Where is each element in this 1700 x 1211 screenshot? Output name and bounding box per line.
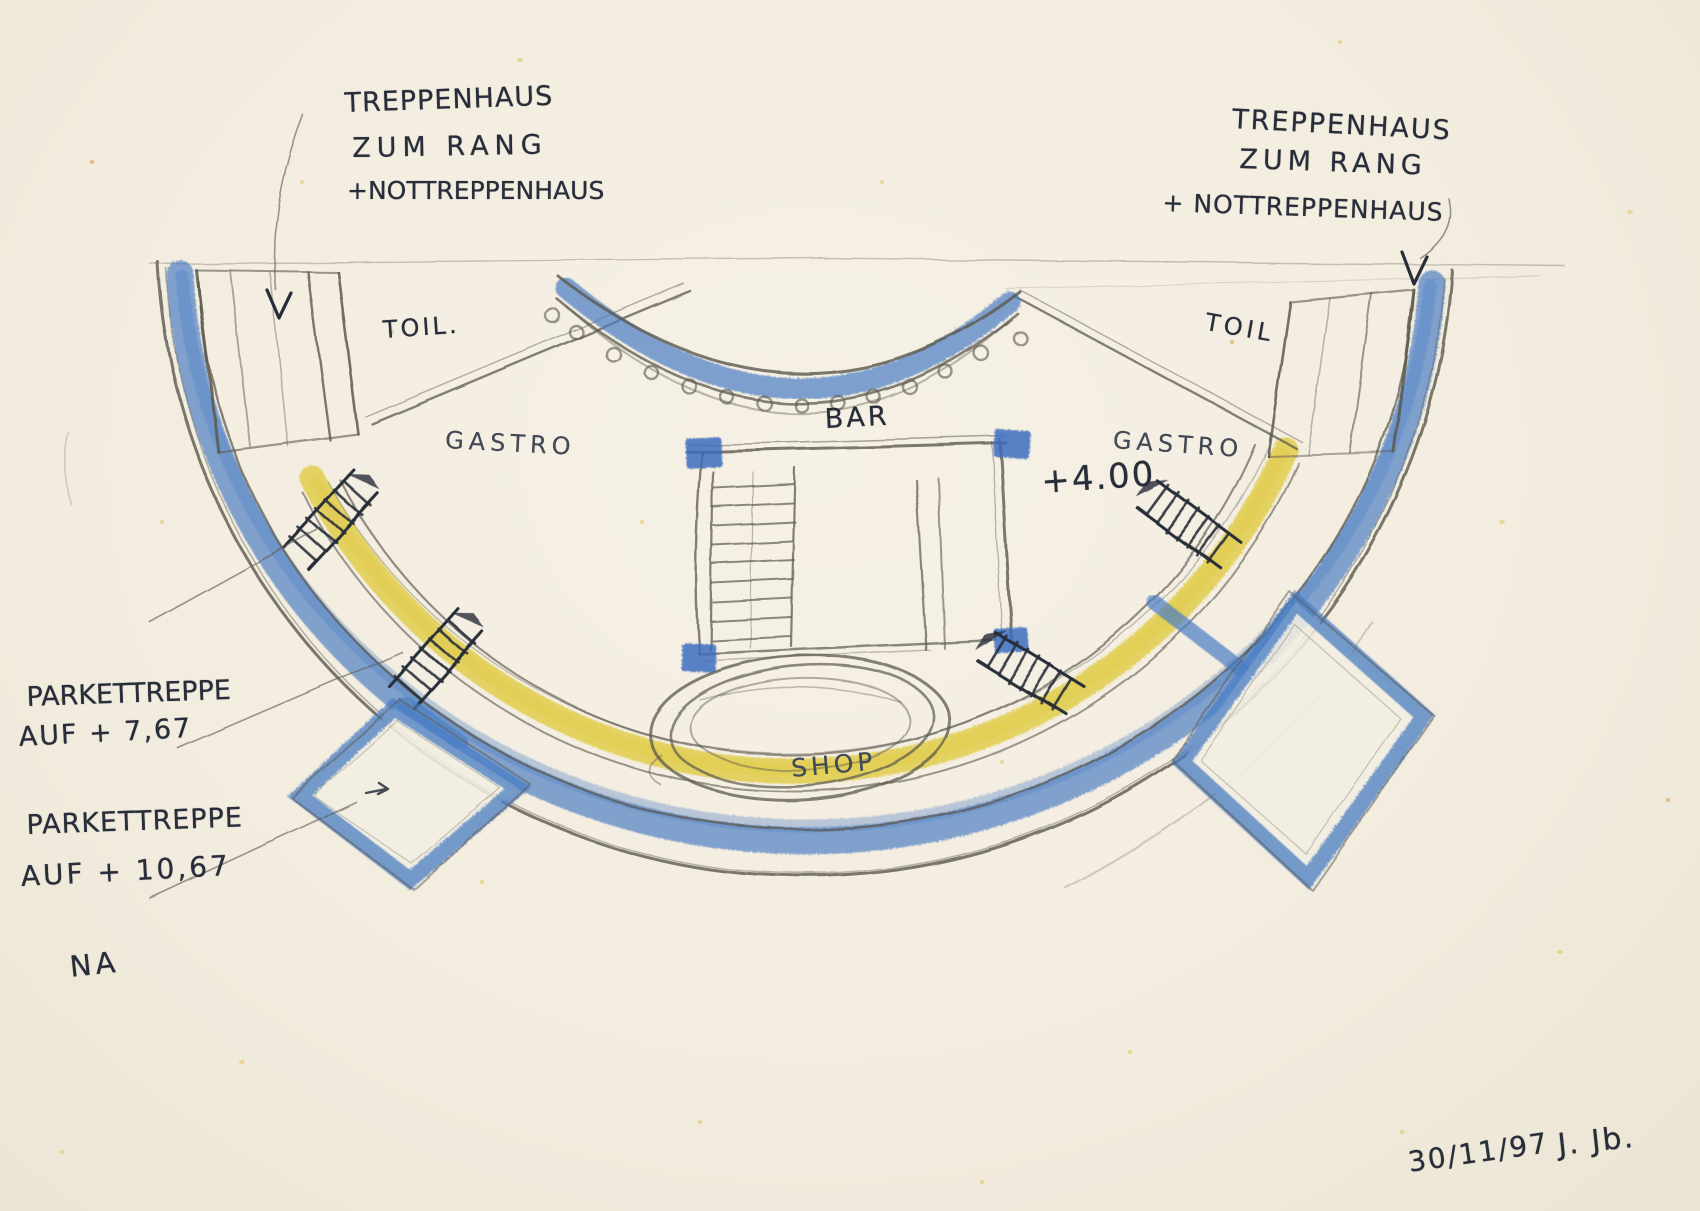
stair-note-right-line2: ZUM RANG	[1239, 144, 1427, 182]
leader-stair-note-left	[275, 115, 303, 290]
level-label: +4.00	[1040, 454, 1157, 502]
shop-ellipse	[646, 648, 953, 808]
core-corner-pads	[682, 429, 1031, 673]
core-stair-block	[682, 429, 1031, 673]
room-label-toilet-left: TOIL.	[382, 311, 460, 344]
sketch-paper: TREPPENHAUS ZUM RANG +NOTTREPPENHAUS TRE…	[0, 0, 1700, 1211]
stair-note-left-line3: +NOTTREPPENHAUS	[347, 176, 604, 205]
floor-plan-drawing	[0, 0, 1700, 1211]
stair-note-left-line2: ZUM RANG	[352, 130, 548, 164]
left-pavilion-diamond	[292, 700, 530, 890]
arrow-down-left-icon	[267, 290, 291, 318]
right-pavilion-diamond	[1154, 592, 1434, 890]
na-label: NA	[68, 945, 121, 984]
room-label-bar: BAR	[824, 401, 890, 435]
hall-edge-arc	[556, 276, 1020, 413]
